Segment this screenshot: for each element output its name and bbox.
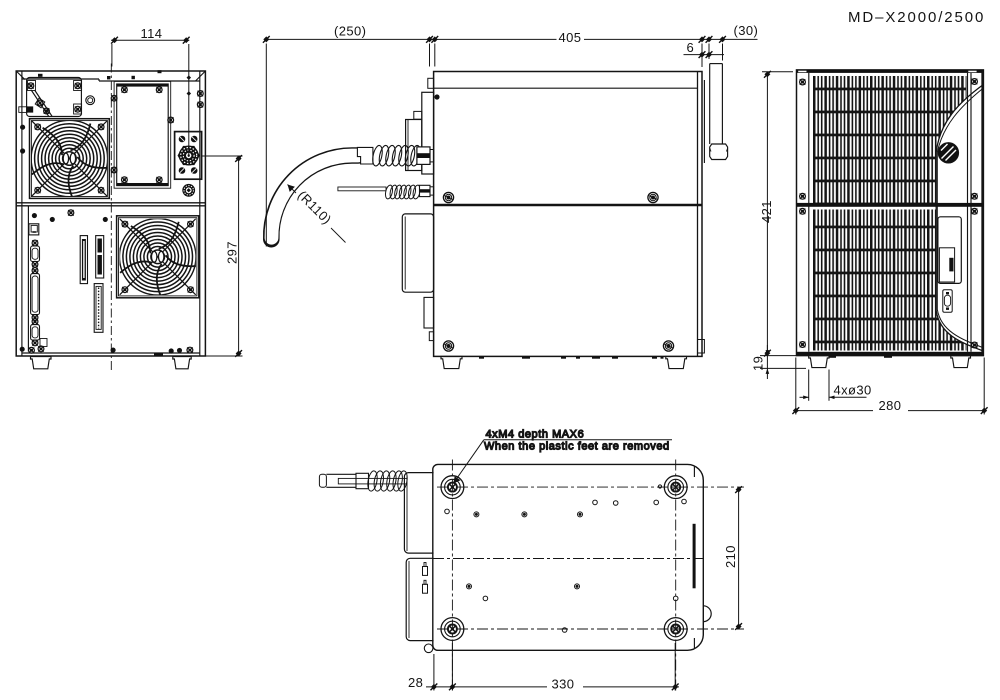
svg-text:280: 280 [879, 398, 902, 413]
svg-text:114: 114 [141, 26, 163, 41]
svg-text:210: 210 [723, 545, 738, 568]
svg-text:4xM4 depth MAX6: 4xM4 depth MAX6 [486, 429, 585, 441]
svg-text:(30): (30) [734, 23, 759, 38]
svg-text:19: 19 [751, 356, 766, 371]
svg-text:421: 421 [759, 200, 774, 223]
svg-text:When the plastic feet are remo: When the plastic feet are removed [484, 441, 670, 453]
svg-text:6: 6 [687, 40, 695, 55]
svg-text:405: 405 [559, 30, 582, 45]
svg-text:(250): (250) [334, 24, 366, 39]
svg-text:297: 297 [225, 241, 240, 264]
svg-text:MD–X2000/2500: MD–X2000/2500 [848, 9, 985, 26]
svg-text:4xø30: 4xø30 [834, 383, 872, 398]
svg-text:330: 330 [552, 676, 575, 691]
svg-text:28: 28 [408, 675, 423, 690]
